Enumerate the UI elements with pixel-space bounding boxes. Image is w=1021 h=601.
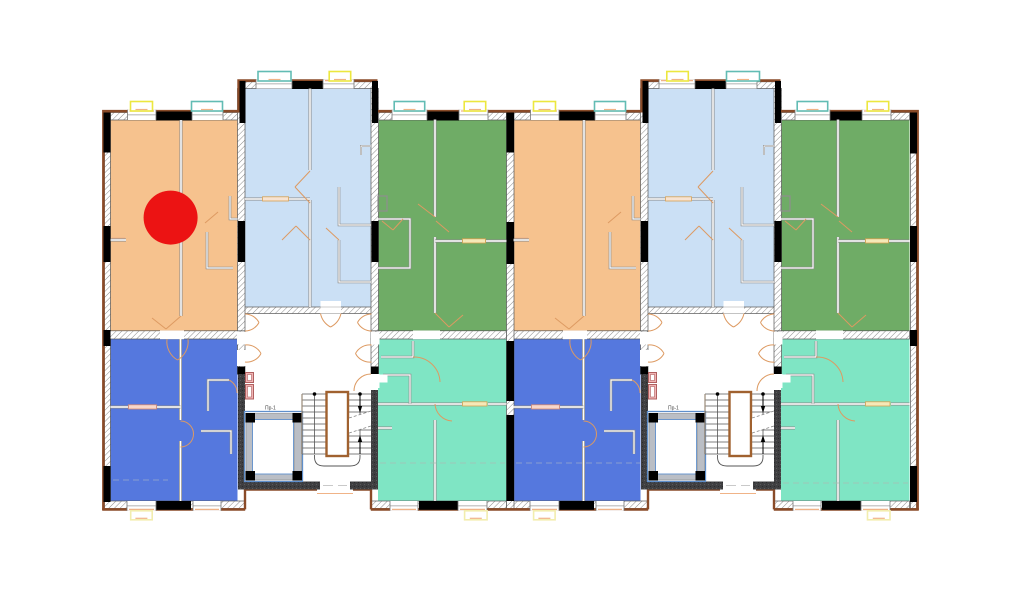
svg-text:Пр-1: Пр-1 (668, 406, 679, 412)
svg-text:Пр-1: Пр-1 (265, 406, 276, 412)
